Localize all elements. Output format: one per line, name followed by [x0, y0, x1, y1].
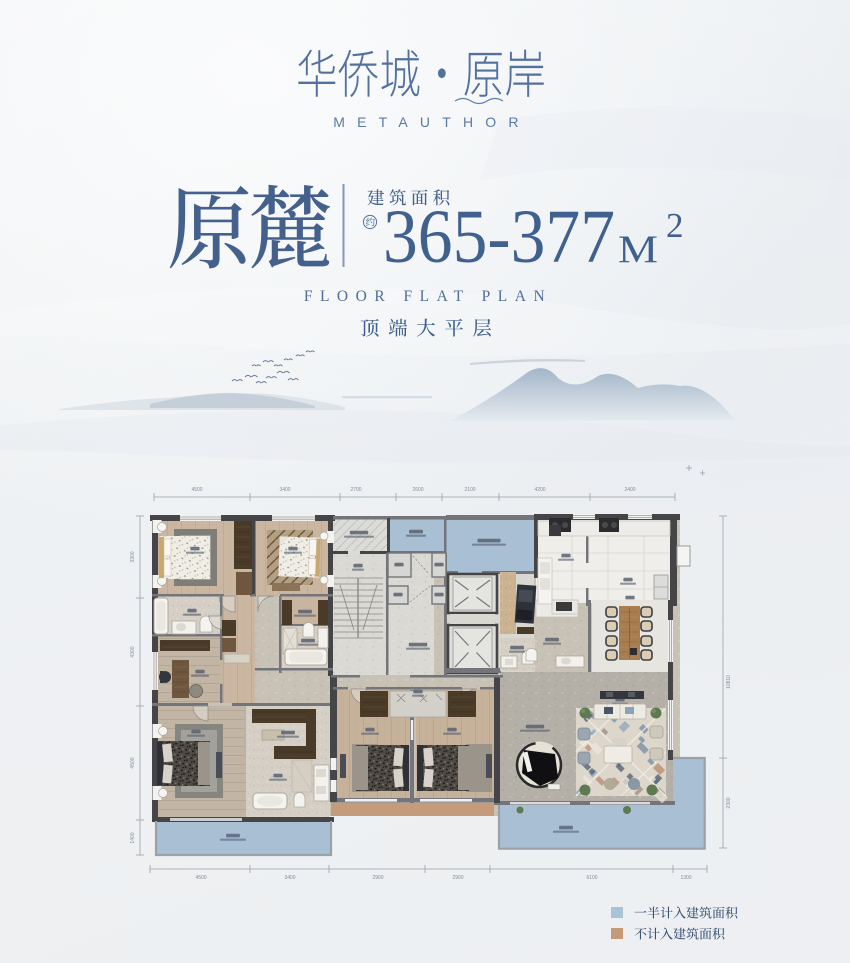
svg-text:METAUTHOR: METAUTHOR	[333, 114, 530, 130]
svg-text:FLOOR FLAT PLAN: FLOOR FLAT PLAN	[304, 288, 552, 305]
svg-text:2: 2	[666, 206, 684, 245]
svg-text:4500: 4500	[195, 875, 206, 881]
svg-text:2300: 2300	[726, 797, 732, 808]
svg-text:2700: 2700	[350, 487, 361, 493]
svg-text:4500: 4500	[130, 757, 136, 768]
svg-text:4500: 4500	[191, 487, 202, 493]
svg-text:M: M	[618, 228, 658, 271]
svg-text:4300: 4300	[130, 646, 136, 657]
svg-text:2900: 2900	[452, 875, 463, 881]
svg-text:2100: 2100	[464, 487, 475, 493]
svg-text:2600: 2600	[412, 487, 423, 493]
svg-text:4200: 4200	[534, 487, 545, 493]
svg-text:3400: 3400	[284, 875, 295, 881]
svg-text:3300: 3300	[130, 551, 136, 562]
svg-text:2900: 2900	[372, 875, 383, 881]
svg-text:1300: 1300	[680, 875, 691, 881]
svg-text:3400: 3400	[279, 487, 290, 493]
svg-text:10810: 10810	[726, 675, 732, 689]
svg-text:365-377: 365-377	[383, 195, 615, 279]
svg-text:2400: 2400	[624, 487, 635, 493]
svg-text:6100: 6100	[586, 875, 597, 881]
svg-text:1400: 1400	[130, 832, 136, 843]
